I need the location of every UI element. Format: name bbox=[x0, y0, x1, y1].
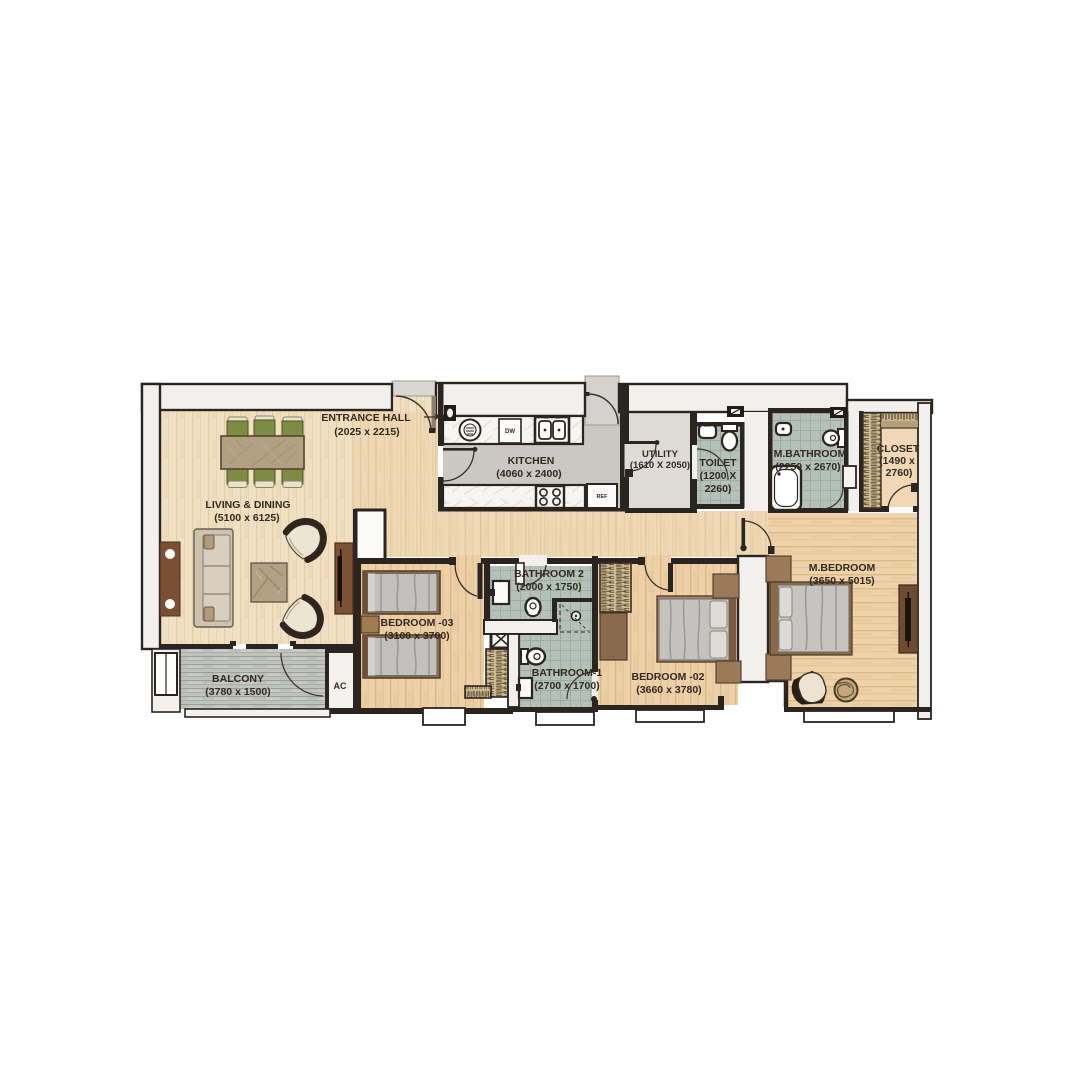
svg-text:AC: AC bbox=[334, 681, 347, 691]
svg-text:KITCHEN: KITCHEN bbox=[508, 455, 555, 467]
svg-text:(2000 x 1750): (2000 x 1750) bbox=[516, 581, 581, 593]
svg-text:(1610 X 2050): (1610 X 2050) bbox=[630, 460, 690, 471]
svg-text:(3660 x 3780): (3660 x 3780) bbox=[636, 684, 701, 696]
svg-text:BALCONY: BALCONY bbox=[212, 673, 264, 685]
svg-text:(1200 X: (1200 X bbox=[700, 470, 737, 482]
svg-text:(1490 x: (1490 x bbox=[879, 455, 915, 467]
svg-text:(3780 x 1500): (3780 x 1500) bbox=[205, 686, 270, 698]
svg-text:BEDROOM -03: BEDROOM -03 bbox=[381, 617, 454, 629]
svg-text:M.BEDROOM: M.BEDROOM bbox=[809, 562, 876, 574]
svg-text:DW: DW bbox=[505, 429, 515, 435]
svg-text:(2025 x 2215): (2025 x 2215) bbox=[334, 426, 399, 438]
svg-text:M.BATHROOM: M.BATHROOM bbox=[774, 448, 847, 460]
svg-text:BATHROOM-1: BATHROOM-1 bbox=[532, 667, 603, 679]
svg-text:CLOSET: CLOSET bbox=[877, 443, 920, 455]
svg-text:2760): 2760) bbox=[886, 467, 913, 479]
svg-text:(2700 x 1700): (2700 x 1700) bbox=[534, 680, 599, 692]
svg-text:UTILITY: UTILITY bbox=[642, 449, 679, 460]
svg-text:LIVING & DINING: LIVING & DINING bbox=[205, 499, 290, 511]
svg-text:(2250 x 2670): (2250 x 2670) bbox=[775, 461, 840, 473]
svg-text:(5100 x 6125): (5100 x 6125) bbox=[214, 512, 279, 524]
svg-text:(3650 x 5015): (3650 x 5015) bbox=[809, 575, 874, 587]
svg-text:ENTRANCE HALL: ENTRANCE HALL bbox=[321, 412, 411, 424]
svg-text:REF: REF bbox=[597, 494, 609, 500]
svg-text:BEDROOM -02: BEDROOM -02 bbox=[632, 671, 705, 683]
svg-text:2260): 2260) bbox=[705, 483, 732, 495]
svg-text:(4060 x 2400): (4060 x 2400) bbox=[496, 468, 561, 480]
svg-text:BATHROOM 2: BATHROOM 2 bbox=[514, 568, 584, 580]
svg-text:(3100 x 3700): (3100 x 3700) bbox=[384, 630, 449, 642]
svg-text:TOILET: TOILET bbox=[699, 457, 737, 469]
